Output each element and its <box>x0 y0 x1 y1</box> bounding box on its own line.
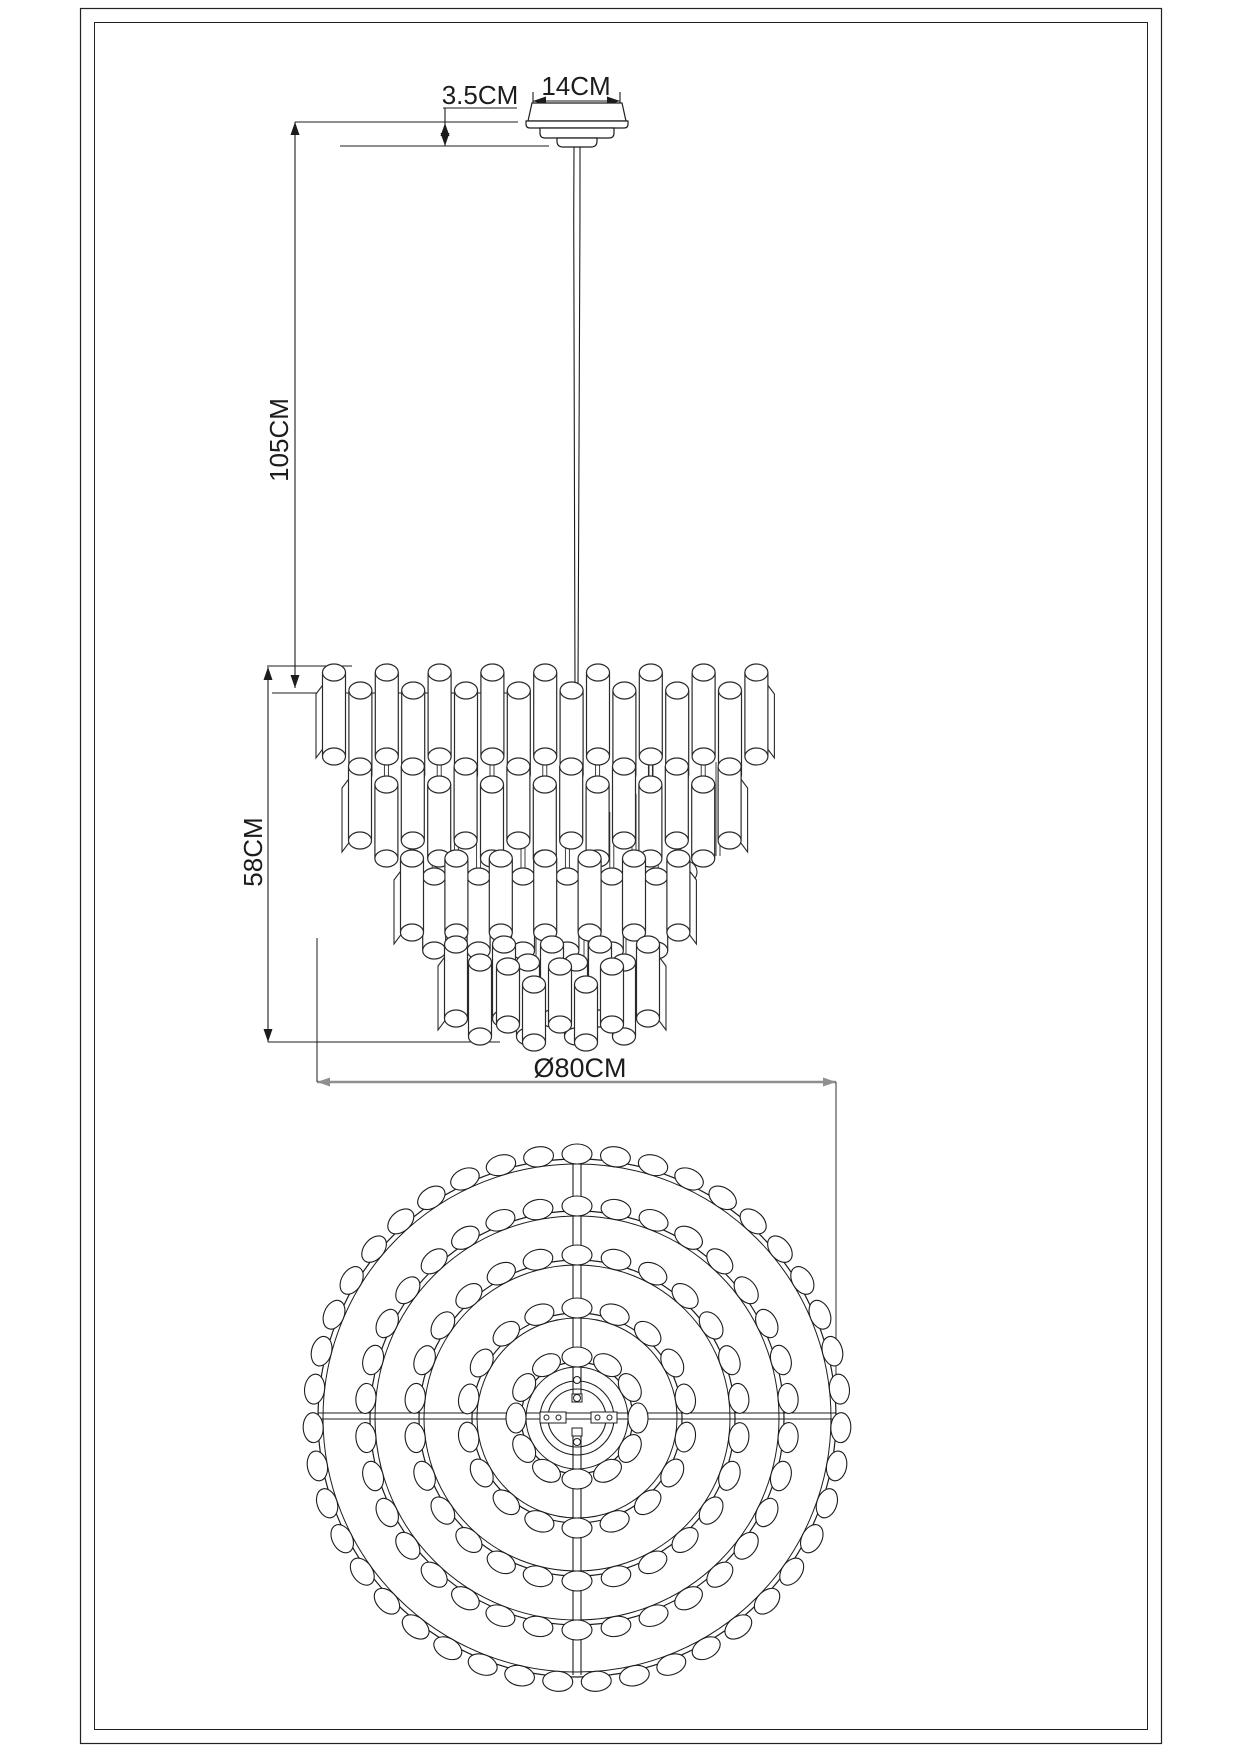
crystal-tube <box>375 664 398 765</box>
crystal-bead <box>451 1279 487 1314</box>
crystal-bead <box>391 1528 425 1564</box>
suspension-wire <box>574 147 580 689</box>
crystal-bead <box>303 1373 326 1405</box>
crystal-bead <box>777 1383 800 1415</box>
crystal-tube <box>549 958 572 1033</box>
crystal-tube <box>587 664 610 765</box>
crystal-bead <box>562 1347 592 1367</box>
crystal-bead <box>305 1449 330 1482</box>
crystal-bead <box>355 1383 378 1415</box>
crystal-bead <box>635 1258 671 1290</box>
crystal-bead <box>749 1583 784 1618</box>
crystal-bead <box>488 1316 524 1351</box>
crystal-bead <box>824 1449 849 1482</box>
crystal-bead <box>819 1334 846 1368</box>
crystal-bead <box>326 1521 358 1557</box>
crystal-tube <box>578 850 601 941</box>
crystal-tube <box>665 758 688 849</box>
crystal-bead <box>581 1670 612 1692</box>
crystal-bead <box>403 1382 426 1414</box>
crystal-tube <box>445 936 468 1027</box>
crystal-tube <box>375 776 398 867</box>
crystal-bead <box>720 1610 756 1644</box>
crystal-bead <box>483 1547 519 1579</box>
crystal-bead <box>562 1571 592 1591</box>
crystal-tube <box>423 868 446 959</box>
crystal-tube <box>401 758 424 849</box>
crystal-bead <box>630 1485 666 1520</box>
canopy-profile <box>528 103 626 121</box>
crystal-bead <box>786 1262 819 1298</box>
crystal-bead <box>777 1422 800 1454</box>
crystal-bead <box>562 1196 592 1216</box>
crystal-bead <box>597 1300 632 1329</box>
crystal-bead <box>447 1164 483 1195</box>
bead-ring-crystals <box>403 1245 750 1591</box>
crystal-bead <box>398 1610 434 1644</box>
crystal-tube <box>623 850 646 941</box>
crystal-bead <box>562 1298 592 1318</box>
crystal-bead <box>727 1382 750 1414</box>
bead-ring-crystals <box>303 1144 852 1692</box>
crystal-bead <box>503 1663 537 1689</box>
crystal-bead <box>688 1632 724 1664</box>
crystal-bead <box>796 1521 828 1557</box>
crystal-tube <box>718 758 741 849</box>
crystal-bead <box>562 1518 592 1538</box>
crystal-tube <box>401 850 424 941</box>
crystal-bead <box>830 1412 851 1443</box>
screw-hole <box>574 1377 581 1384</box>
crystal-tube <box>613 758 636 849</box>
canopy-profile <box>540 128 614 138</box>
crystal-bead <box>735 1204 771 1239</box>
dim-label-canopy-height: 3.5CM <box>442 80 519 110</box>
screw-hole <box>574 1439 581 1446</box>
crystal-bead <box>597 1507 632 1536</box>
crystal-bead <box>319 1297 349 1332</box>
crystal-tube <box>428 664 451 765</box>
crystal-bead <box>727 1422 750 1454</box>
crystal-bead <box>521 1614 554 1639</box>
canopy-profile <box>557 138 597 147</box>
tube-tier <box>497 958 624 1051</box>
dimension-arrowhead <box>317 1078 330 1087</box>
crystal-bead <box>372 1495 403 1531</box>
crystal-tube <box>667 850 690 941</box>
crystal-bead <box>466 1455 498 1491</box>
crystal-bead <box>416 1244 452 1279</box>
screw-hole <box>574 1395 581 1402</box>
crystal-bead <box>729 1272 763 1308</box>
crystal-bead <box>562 1245 592 1265</box>
crystal-bead <box>751 1306 782 1342</box>
dim-label-suspension-length: 105CM <box>264 398 294 482</box>
crystal-tube <box>349 758 372 849</box>
wire-left-edge <box>574 147 575 689</box>
crystal-bead <box>369 1583 404 1618</box>
dimension-arrowhead <box>291 122 300 135</box>
crystal-bead <box>763 1231 798 1267</box>
plan-center-hardware <box>540 1377 617 1456</box>
crystal-tube <box>454 758 477 849</box>
crystal-bead <box>618 1663 652 1689</box>
dimension-arrowhead <box>823 1078 836 1087</box>
dim-label-canopy-width: 14CM <box>541 71 610 101</box>
center-fitting <box>572 1428 582 1436</box>
screw-hole <box>595 1415 600 1420</box>
tube-tier <box>316 664 774 783</box>
crystal-bead <box>667 1523 703 1558</box>
crystal-tube <box>497 958 520 1033</box>
crystal-tube <box>560 758 583 849</box>
crystal-tube <box>467 868 490 959</box>
bead-ring-crystals <box>456 1298 698 1538</box>
crystal-tube <box>507 758 530 849</box>
dimension-arrowhead <box>441 133 450 146</box>
crystal-tube <box>601 958 624 1033</box>
crystal-bead <box>628 1403 648 1433</box>
crystal-tube <box>692 776 715 867</box>
canopy-profile <box>526 121 628 128</box>
dim-label-body-diameter: Ø80CM <box>533 1053 626 1083</box>
crystal-bead <box>308 1334 335 1368</box>
crystal-bead <box>357 1231 392 1267</box>
crystal-bead <box>751 1495 782 1531</box>
crystal-bead <box>521 1197 554 1222</box>
crystal-bead <box>451 1523 487 1558</box>
crystal-tube <box>639 664 662 765</box>
crystal-bead <box>335 1262 368 1298</box>
crystal-bead <box>630 1316 666 1351</box>
crystal-tube <box>445 850 468 941</box>
crystal-bead <box>303 1412 324 1443</box>
crystal-tube <box>534 664 557 765</box>
crystal-tube <box>534 850 557 941</box>
crystal-tube <box>692 664 715 765</box>
crystal-bead <box>562 1144 592 1164</box>
crystal-bead <box>656 1455 688 1491</box>
ceiling-canopy <box>526 103 628 147</box>
wire-right-edge <box>578 147 580 689</box>
drawing-sheet: 3.5CM 14CM 105CM 58CM Ø80CM <box>0 0 1240 1755</box>
front-elevation-view <box>316 664 774 1051</box>
bead-ring-crystals <box>506 1347 648 1489</box>
crystal-tube <box>575 976 598 1051</box>
crystal-bead <box>805 1297 835 1332</box>
crystal-bead <box>656 1345 688 1381</box>
crystal-bead <box>562 1620 592 1640</box>
crystal-bead <box>729 1528 763 1564</box>
crystal-tube <box>523 976 546 1051</box>
screw-hole <box>544 1415 549 1420</box>
crystal-bead <box>702 1557 738 1592</box>
crystal-bead <box>671 1164 707 1195</box>
crystal-bead <box>522 1300 557 1329</box>
crystal-bead <box>667 1279 703 1314</box>
dim-label-body-height: 58CM <box>238 817 268 886</box>
crystal-tube <box>637 936 660 1027</box>
crystal-bead <box>635 1547 671 1579</box>
crystal-bead <box>483 1258 519 1290</box>
crystal-bead <box>488 1485 524 1520</box>
crystal-bead <box>430 1632 466 1664</box>
crystal-tube <box>323 664 346 765</box>
crystal-bead <box>702 1244 738 1279</box>
crystal-bead <box>383 1204 419 1239</box>
dimension-arrowhead <box>264 667 273 680</box>
crystal-bead <box>828 1373 851 1405</box>
crystal-bead <box>522 1507 557 1536</box>
crystal-bead <box>416 1557 452 1592</box>
crystal-bead <box>355 1422 378 1454</box>
crystal-tube <box>469 954 492 1045</box>
crystal-bead <box>391 1272 425 1308</box>
chandelier-dimension-drawing: 3.5CM 14CM 105CM 58CM Ø80CM <box>0 0 1240 1755</box>
plan-view <box>303 1144 852 1692</box>
crystal-bead <box>403 1422 426 1454</box>
crystal-bead <box>466 1345 498 1381</box>
crystal-tube <box>489 850 512 941</box>
crystal-bead <box>599 1614 632 1639</box>
dimension-arrowhead <box>264 1029 273 1042</box>
screw-hole <box>607 1415 612 1420</box>
crystal-bead <box>599 1197 632 1222</box>
crystal-tube <box>745 664 768 765</box>
screw-hole <box>556 1415 561 1420</box>
crystal-bead <box>506 1403 526 1433</box>
crystal-bead <box>542 1670 573 1692</box>
crystal-bead <box>372 1306 403 1342</box>
dimension-arrowhead <box>291 675 300 688</box>
crystal-tube <box>481 664 504 765</box>
crystal-bead <box>562 1469 592 1489</box>
